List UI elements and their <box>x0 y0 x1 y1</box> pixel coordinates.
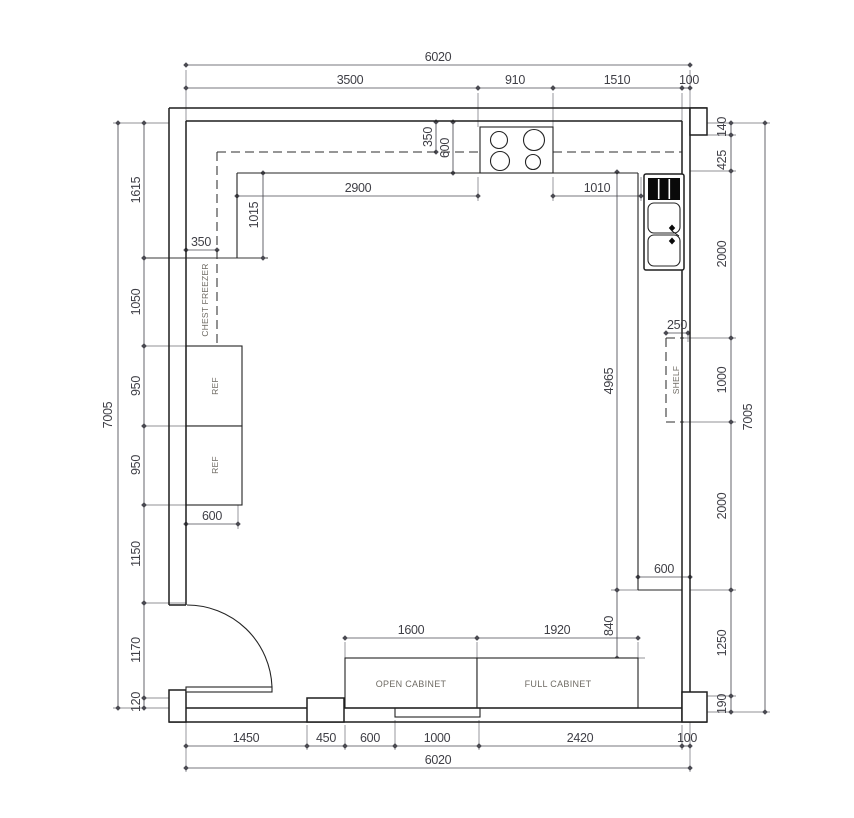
dim-right-190: 190 <box>715 694 729 714</box>
floor-plan-canvas: 6020 3500 910 1510 100 2900 1010 350 600… <box>0 0 854 818</box>
dim-top-100: 100 <box>679 73 699 87</box>
ref-bottom-label: REF <box>210 456 220 474</box>
dim-left-120: 120 <box>129 692 143 712</box>
dim-ref-600: 600 <box>202 509 222 523</box>
dim-top-910: 910 <box>505 73 525 87</box>
dim-top-1510: 1510 <box>604 73 631 87</box>
dim-top-3500: 3500 <box>337 73 364 87</box>
walls <box>169 108 707 722</box>
dim-bottom-total: 6020 <box>425 753 452 767</box>
ref-top-label: REF <box>210 377 220 395</box>
dim-depth-600: 600 <box>438 138 452 158</box>
bottom-mid-pier <box>307 698 344 722</box>
dim-left-1150: 1150 <box>129 541 143 567</box>
dim-full-1920: 1920 <box>544 623 571 637</box>
dim-run-4965: 4965 <box>602 367 616 394</box>
door-side-pier <box>169 690 186 722</box>
dim-left-total: 7005 <box>101 401 115 428</box>
dim-bottom-1000: 1000 <box>424 731 451 745</box>
full-cabinet-label: FULL CABINET <box>525 679 592 689</box>
dim-right-425: 425 <box>715 150 729 170</box>
dim-left-1615: 1615 <box>129 176 143 203</box>
dim-open-1600: 1600 <box>398 623 425 637</box>
sink-drainboard <box>648 178 680 200</box>
dim-bottom-450: 450 <box>316 731 336 745</box>
dim-right-600: 600 <box>654 562 674 576</box>
dim-right-total: 7005 <box>741 403 755 430</box>
dim-right-1250: 1250 <box>715 629 729 656</box>
cooktop <box>480 127 553 173</box>
dim-right-2000a: 2000 <box>715 240 729 267</box>
dim-top-total: 6020 <box>425 50 452 64</box>
threshold <box>395 708 480 717</box>
dim-return-1015: 1015 <box>247 201 261 228</box>
bottom-right-pier <box>682 692 707 722</box>
shelf-label: SHELF <box>671 366 681 394</box>
dim-right-1000: 1000 <box>715 366 729 393</box>
dim-left-1050: 1050 <box>129 288 143 315</box>
dim-left-1170: 1170 <box>129 637 143 663</box>
chest-freezer-label: CHEST FREEZER <box>200 263 210 336</box>
dim-left-950a: 950 <box>129 376 143 396</box>
dim-left-950b: 950 <box>129 455 143 475</box>
sink <box>644 174 684 270</box>
dim-band-350: 350 <box>421 127 435 147</box>
dim-bottom-2420: 2420 <box>567 731 594 745</box>
dim-bottom-1450: 1450 <box>233 731 260 745</box>
dim-freezer-350: 350 <box>191 235 211 249</box>
dim-bottom-100: 100 <box>677 731 697 745</box>
door-swing-arc <box>187 605 272 687</box>
dim-right-2000b: 2000 <box>715 492 729 519</box>
dim-right-140: 140 <box>715 117 729 137</box>
dashed-lines <box>217 152 684 505</box>
dim-bottom-600: 600 <box>360 731 380 745</box>
entry-door <box>186 605 272 692</box>
dim-shelf-250: 250 <box>667 318 687 332</box>
door-leaf <box>186 687 272 692</box>
open-cabinet-label: OPEN CABINET <box>376 679 447 689</box>
top-right-pier <box>690 108 707 135</box>
dim-gap-1010: 1010 <box>584 181 611 195</box>
floor-plan-page: 6020 3500 910 1510 100 2900 1010 350 600… <box>0 0 854 818</box>
dim-gap-840: 840 <box>602 616 616 636</box>
dim-counter-2900: 2900 <box>345 181 372 195</box>
